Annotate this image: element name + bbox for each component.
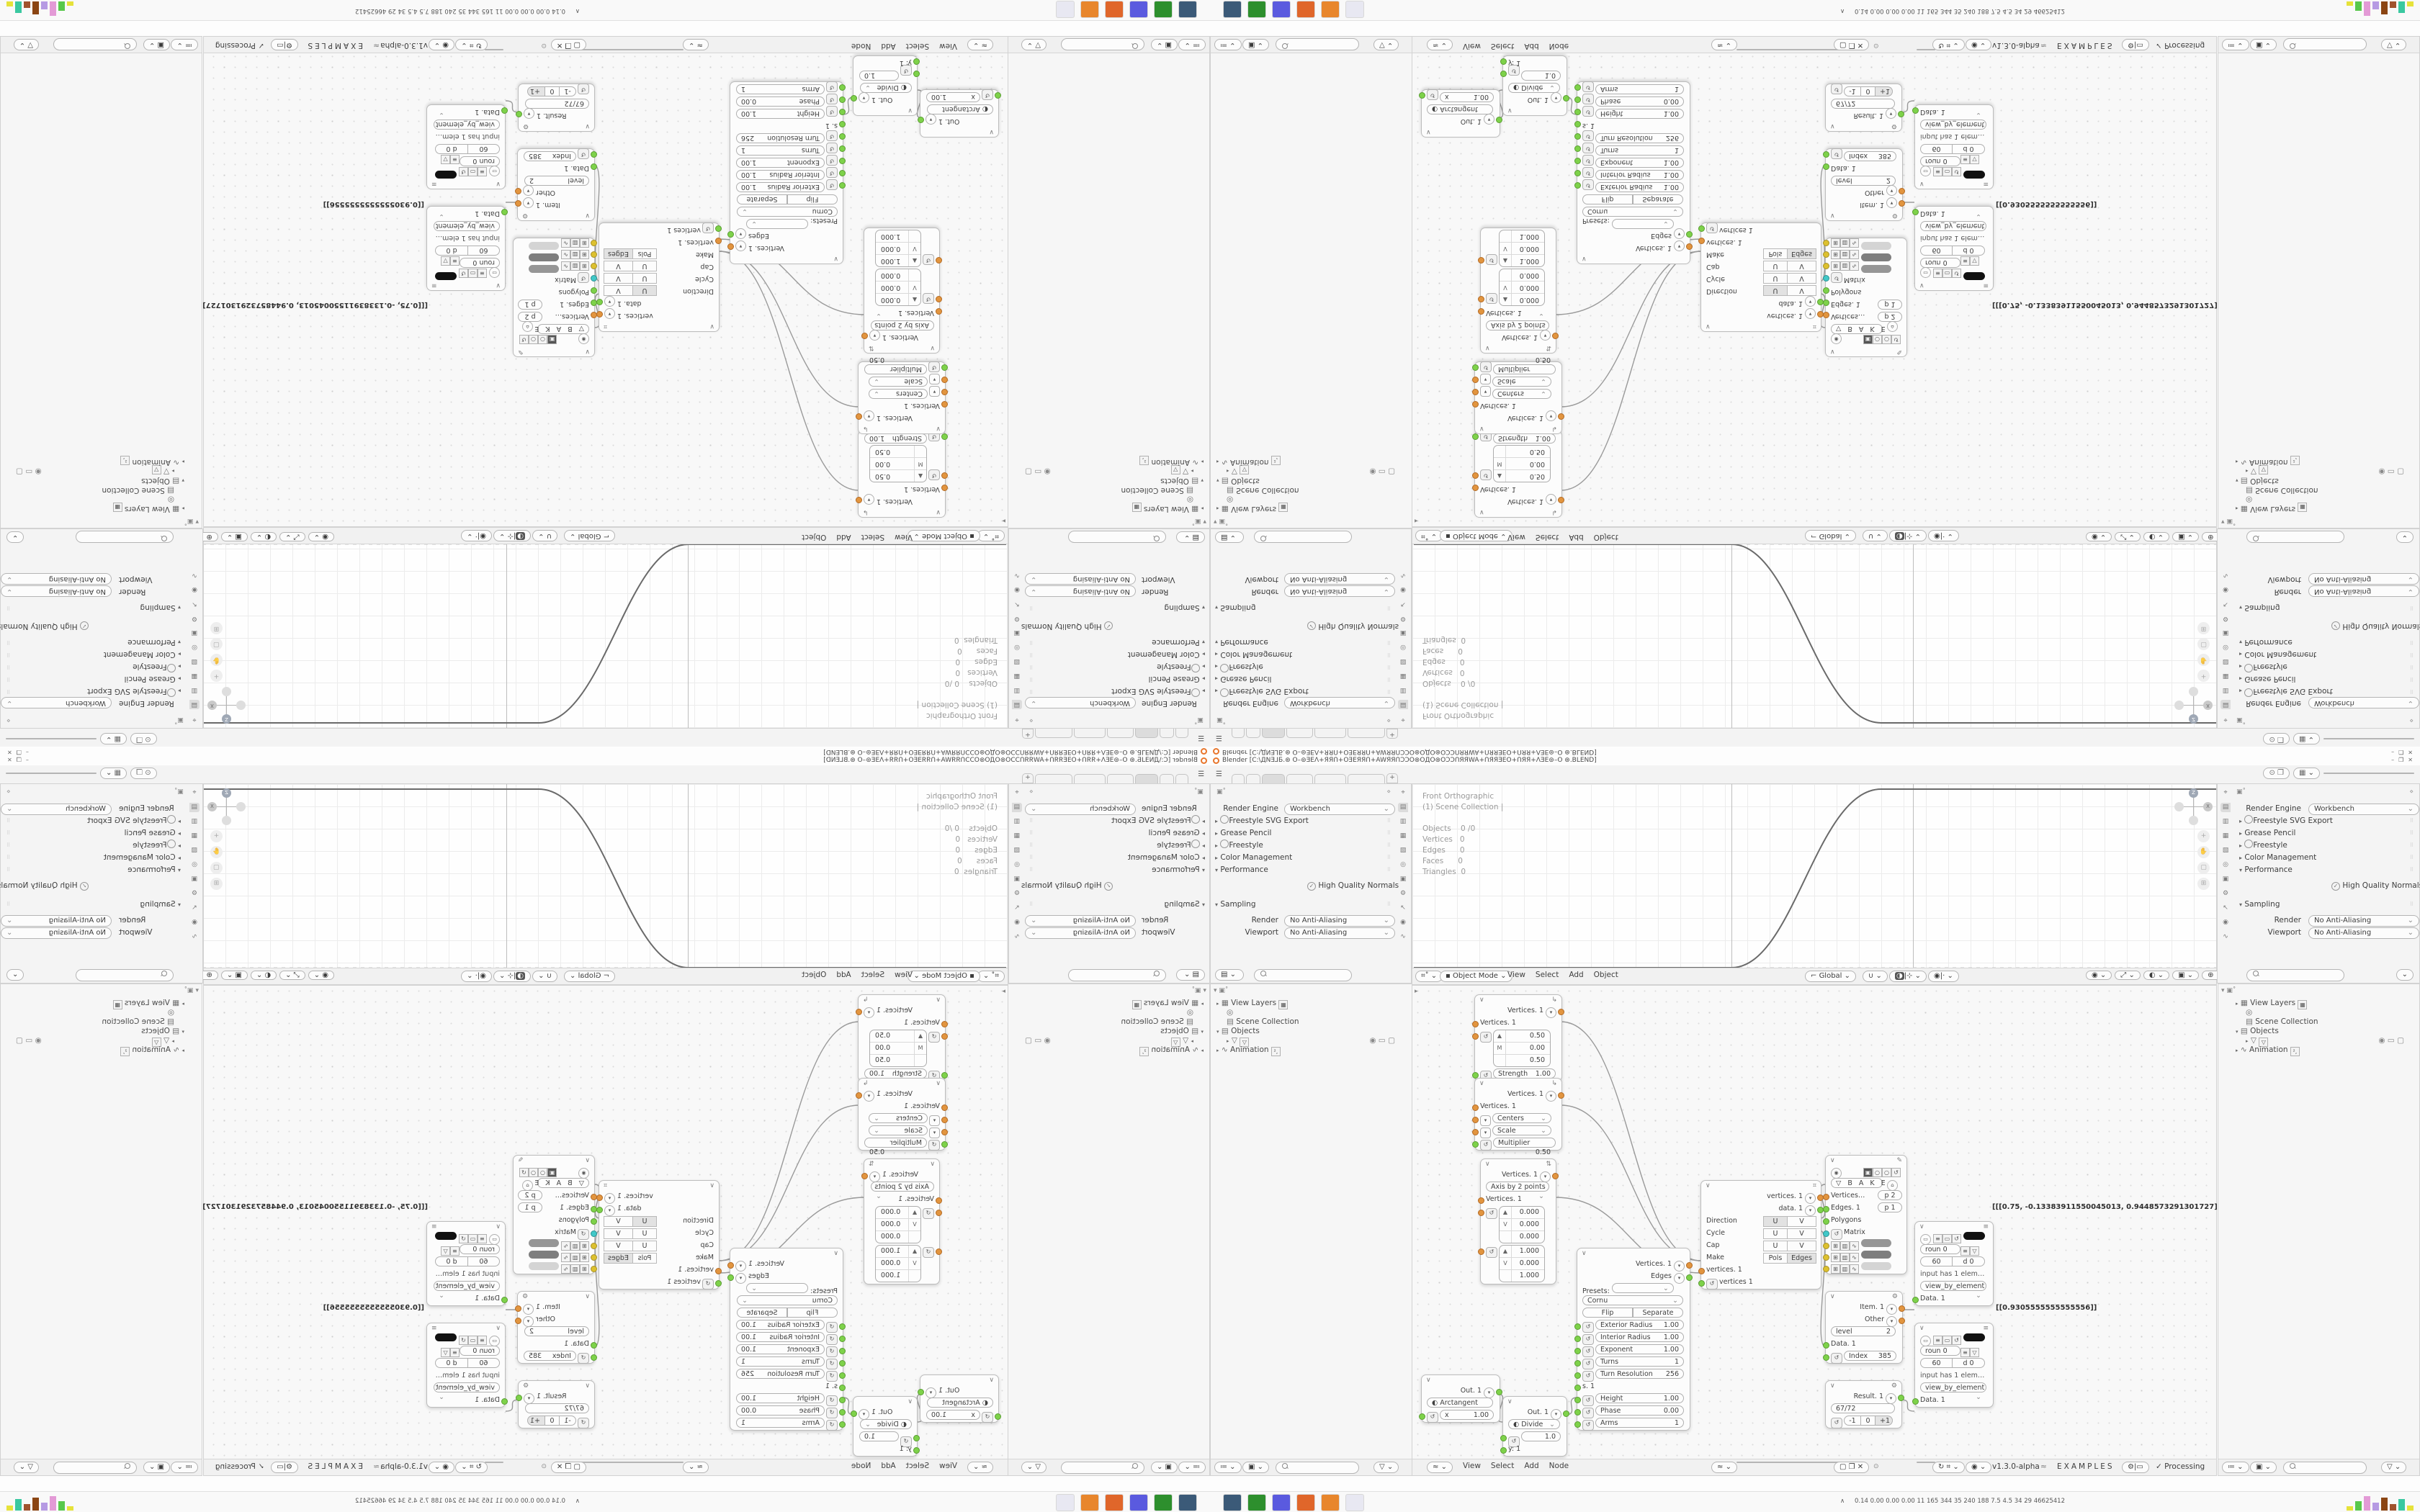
socket-green-right[interactable] [727,231,734,238]
checkbox-circle[interactable] [2244,664,2253,672]
mask-icon[interactable]: ⊞ [580,250,589,259]
section-label[interactable]: Grease Pencil [125,829,176,837]
number-field[interactable]: 67/72 [1831,99,1895,109]
socket-green-left[interactable] [1574,1323,1581,1330]
monitor-icon[interactable]: ▭ [489,1234,500,1245]
socket-orange-left[interactable] [941,1104,948,1111]
editor-type-dropdown[interactable]: ⌗˚ ⌄ [1415,971,1443,982]
tray-expand-icon[interactable]: ∧ [1840,7,1845,14]
socket-orange-right[interactable] [727,243,734,250]
enum-dropdown[interactable]: view_by_element⌄ [434,120,500,130]
outliner-chip-icon[interactable]: ², [2290,456,2300,465]
prop-dropdown[interactable]: No Anti-Aliasing⌄ [2308,585,2419,597]
menu-object[interactable]: Object [802,533,826,541]
editor-type-icon[interactable]: ▣˚ [1194,788,1204,796]
section-label[interactable]: Sampling [1220,603,1255,612]
list-icon[interactable]: ≡ [1960,256,1970,266]
socket-menu-icon[interactable]: ▾ [1674,228,1685,239]
animate-icon[interactable]: ↺ [826,1322,838,1333]
sverchok-node[interactable]: ∨✎◉ ▣○○↺▽ B A K E ⌂Vertices…p 2Edges. 1p… [513,1155,595,1274]
workspace-tab[interactable] [1348,774,1385,783]
socket-orange-left[interactable] [1478,1248,1484,1255]
shading-icon[interactable]: ⤢ ⌄ [2115,532,2141,541]
sverchok-node[interactable]: ∨Out. 1▾◐ Arctangent⌄↺x1.00 [920,89,999,138]
monitor-icon[interactable]: ▭ [1920,1234,1931,1245]
disclosure-icon[interactable]: ▾ [1202,867,1205,873]
disclosure-icon[interactable]: ▸ [2246,1038,2249,1044]
collapse-icon[interactable]: ∨ [1830,121,1835,131]
search-input[interactable] [1254,531,1352,543]
cycle-icon[interactable]: ↺ [578,84,589,94]
number-field[interactable]: Exterior Radius1.00 [736,182,825,192]
checkbox[interactable]: ✓ High Quality Normals [1021,620,1113,632]
disclosure-icon[interactable]: ▾ [1215,604,1218,611]
outliner-item-label[interactable]: Scene Collection [102,486,164,495]
disclosure-icon[interactable]: ▸ [178,688,181,694]
checkbox[interactable]: ✓ High Quality Normals [0,620,89,632]
socket-green-left[interactable] [995,1413,1001,1420]
socket-green-right[interactable] [727,1274,734,1281]
curve-icon[interactable]: ∿ [561,1253,570,1262]
socket-green-left[interactable] [1698,225,1705,232]
menu-node[interactable]: Node [1549,42,1569,50]
collapse-icon[interactable]: ∨ [989,1375,994,1385]
properties-tab-icon[interactable]: ▤ [189,803,200,812]
socket-orange-right[interactable] [1558,1009,1564,1015]
socket-orange-right[interactable] [856,497,862,503]
socket-orange-left[interactable] [1472,472,1479,479]
vector-field[interactable]: ▲0.50M0.000.50 [869,445,927,482]
properties-tab-icon[interactable]: ▥ [2220,685,2231,695]
socket-green-left[interactable] [591,163,597,170]
disclosure-icon[interactable]: ▾ [178,867,181,873]
tree-select-dropdown[interactable]: ≈ ⌄ [1711,39,1737,50]
color-swatch[interactable] [529,253,559,261]
animate-icon[interactable]: ↺ [982,89,993,100]
toggle-button[interactable]: Separate [1633,1308,1683,1318]
section-label[interactable]: Performance [127,638,176,647]
taskbar-app-icon[interactable] [1080,1494,1099,1511]
layers-icon[interactable]: ▥ [1840,250,1850,259]
disclosure-icon[interactable]: ▾ [1215,639,1218,645]
properties-tab-icon[interactable]: ◎ [2220,860,2231,870]
section-label[interactable]: Sampling [1164,603,1199,612]
viewport-3d[interactable]: Front Orthographic(1) Scene Collection |… [203,527,1008,729]
viewlayer-field[interactable] [6,738,97,739]
checkbox-circle[interactable] [2244,688,2253,697]
cycle-icon[interactable]: ↺ [1831,84,1842,94]
section-label[interactable]: Freestyle [1229,841,1263,850]
checkbox-circle[interactable] [167,688,176,697]
taskbar-app-icon[interactable] [1105,1,1124,18]
taskbar-app-icon[interactable] [1154,1494,1173,1511]
nav-tool-icon[interactable]: ▢ [2197,862,2210,874]
viewlayer-icon-dropdown[interactable]: ▦ ⌄ [100,768,127,779]
proportional-edit[interactable]: ◉|· ⌄ [1928,971,1959,982]
stepper-minus[interactable]: -1 [559,1416,576,1426]
enum-dropdown[interactable]: Axis by 2 points⌄ [871,1182,934,1192]
enum-dropdown[interactable]: view_by_element⌄ [434,1382,500,1392]
number-field[interactable]: 1.0 [1521,71,1561,81]
list-icon[interactable]: ≡ [1933,167,1942,176]
socket-yellow-left[interactable] [1823,263,1829,269]
collapse-icon[interactable]: ∨ [1582,253,1587,264]
socket-green-left[interactable] [839,1397,846,1403]
rounding-field[interactable]: roun 0 [460,156,500,166]
vector-field[interactable]: ▲1.000V0.0001.000 [875,1245,921,1282]
vector-field[interactable]: ▲0.000V0.0000.000 [1499,1206,1545,1243]
socket-orange-right[interactable] [856,413,862,420]
collapse-icon[interactable]: ∨ [585,210,590,220]
collapse-icon[interactable]: ∨ [907,105,913,115]
socket-green-right[interactable] [1496,117,1502,123]
checkbox[interactable]: ✓ High Quality Normals [1307,620,1399,632]
collapse-icon[interactable]: ∨ [585,1156,590,1166]
fake-user-buttons[interactable]: ▢ ❐ ✕ [1834,39,1869,50]
color-swatch[interactable] [529,265,559,273]
sverchok-node[interactable]: ∨≡▭ ≡▭↺ roun 0≡▽60d 0input has 1 elem…vi… [426,206,506,291]
socket-green-right[interactable] [918,1389,924,1395]
filter-icon[interactable]: ▽ [441,256,450,266]
taskbar-app-icon[interactable] [1321,1,1340,18]
add-workspace-button[interactable]: + [1386,773,1398,783]
taskbar-app-icon[interactable] [1129,1,1148,18]
node-editor[interactable]: ▸ ∨↳Vertices. 1▾Vertices. 1↺▲0.50M0.000.… [1412,985,2217,1476]
workspace-tab[interactable] [1074,729,1106,738]
rounding-field[interactable]: roun 0 [460,1346,500,1356]
socket-green-left[interactable] [1574,121,1581,127]
menu-icon[interactable]: ☰ [1216,734,1225,742]
socket-green-left[interactable] [1574,1385,1581,1391]
shading-icons[interactable]: ◉ ⌄⤢ ⌄◐ ⌄▣ ⌄⊕ ⌄ [2086,971,2231,981]
properties-tab-icon[interactable]: ⚙ [1398,613,1408,623]
shading-icon[interactable]: ◐ ⌄ [251,971,277,980]
socket-orange-right[interactable] [1899,188,1905,194]
animate-icon[interactable]: ↺ [702,222,714,233]
presets-dropdown[interactable]: ⌄ [1612,1283,1674,1293]
animate-icon[interactable]: ↺ [826,155,838,166]
socket-orange-left[interactable] [941,1033,948,1040]
mask-icon[interactable]: ⊞ [1831,1253,1840,1262]
socket-green-left[interactable] [839,133,846,140]
disclosure-icon[interactable]: ▸ [178,830,181,837]
tree-name-field[interactable] [1736,49,1842,50]
grid-cell[interactable]: Edges [1788,1253,1816,1264]
animate-icon[interactable]: ↺ [928,469,940,480]
filter-icon[interactable]: ▽ [1970,256,1979,266]
socket-orange-right[interactable] [861,333,868,339]
disclosure-icon[interactable]: ▾ [1202,604,1205,611]
viewlayer-icon-dropdown[interactable]: ▦ ⌄ [2293,768,2320,779]
outliner-item-label[interactable]: Objects [2250,1027,2279,1035]
grid-cell[interactable]: U [632,1241,657,1251]
properties-tab-icon[interactable]: ▥ [189,817,200,827]
sverchok-node[interactable]: ∨⚙Item. 1▾Other▾level2Data. 1↺Index385 [1825,1291,1903,1364]
enum-dropdown[interactable]: Axis by 2 points⌄ [1486,1182,1549,1192]
sverchok-node[interactable]: ∨↳Vertices. 1▾Vertices. 1▾Centers⌄▾Scale… [858,1078,946,1151]
socket-menu-icon[interactable]: ▾ [1886,197,1897,208]
add-workspace-button[interactable]: + [1022,729,1034,739]
outliner-item-label[interactable]: Animation [1151,458,1190,467]
grid-cell[interactable]: Pols [1763,248,1788,259]
list-icon[interactable]: ≡ [1933,269,1942,278]
properties-tab-icon[interactable]: ◉ [1012,918,1022,927]
tree-type-dropdown[interactable]: ≈ ⌄ [967,39,993,50]
menu-add[interactable]: Add [1524,1462,1538,1470]
socket-menu-icon[interactable]: ▾ [1480,1128,1491,1138]
layers-icon[interactable]: ▥ [570,1253,580,1262]
search-input[interactable] [1254,969,1352,981]
socket-green-left[interactable] [839,1372,846,1379]
number-field[interactable]: Phase0.00 [736,96,825,107]
prop-dropdown[interactable]: No Anti-Aliasing⌄ [1,927,112,939]
workspace-tab[interactable] [1286,729,1313,738]
search-input[interactable] [1276,1462,1359,1474]
pin-icon[interactable]: ⊙ [1873,42,1879,49]
socket-green-left[interactable] [1698,1280,1705,1287]
workspace-tab[interactable] [1135,729,1158,738]
pin-icon[interactable]: ⋄ [1386,716,1391,724]
color-swatch-black[interactable] [435,272,457,280]
socket-green-left[interactable] [501,1297,508,1303]
grid-cell[interactable]: V [604,1241,632,1251]
properties-tab-icon[interactable]: ◉ [2220,918,2231,927]
shading-icon[interactable]: ▣ ⌄ [221,971,248,980]
collapse-icon[interactable]: ∨ [1479,1079,1484,1089]
section-label[interactable]: Color Management [1220,853,1292,862]
workspace-tab[interactable] [1035,729,1072,738]
tree-select-dropdown[interactable]: ≈ ⌄ [683,1462,709,1473]
search-input[interactable] [1068,969,1166,981]
collapse-icon[interactable]: ∨ [585,1292,590,1302]
editor-type-dropdown[interactable]: ⌗˚ ⌄ [1415,530,1443,541]
section-label[interactable]: Performance [1152,865,1200,874]
eye-icon[interactable]: ◉ [578,333,589,344]
socket-orange-left[interactable] [936,308,942,315]
disclosure-icon[interactable]: ▸ [1215,688,1218,694]
viewport-gizmos[interactable]: Z X +✋▢⊞ [2174,788,2218,918]
socket-green-right[interactable] [516,1395,522,1401]
list-icon[interactable]: ≡ [1960,1246,1970,1256]
list-icon[interactable]: ≡ [478,1336,487,1345]
color-swatch-black[interactable] [435,1232,457,1240]
tree-type-dropdown[interactable]: ≈ ⌄ [967,1462,993,1473]
tray-expand-icon[interactable]: ∧ [575,7,580,14]
color-swatch[interactable] [529,1239,559,1247]
number-field[interactable]: Interior Radius1.00 [736,170,825,180]
animate-icon[interactable]: ↺ [1831,272,1842,283]
sverchok-node[interactable]: ∨≡▭ ≡▭↺ roun 0≡▽60d 0input has 1 elem…vi… [1914,1323,1994,1408]
disclosure-icon[interactable]: ▸ [1215,675,1218,682]
socket-menu-icon[interactable]: ▾ [524,1393,534,1404]
nav-tool-icon[interactable]: ▢ [210,862,223,874]
socket-menu-icon[interactable]: ▾ [604,308,615,319]
properties-tab-icon[interactable]: ▧ [1012,846,1022,855]
animate-icon[interactable]: ↺ [702,1279,714,1290]
grid-cell[interactable]: Edges [604,248,632,259]
socket-yellow-left[interactable] [591,1243,597,1249]
menu-add[interactable]: Add [836,971,851,979]
disclosure-icon[interactable]: ▸ [1202,842,1205,849]
color-swatch[interactable] [1861,1239,1891,1247]
animate-icon[interactable]: ↺ [826,1408,838,1418]
layers-icon[interactable]: ▥ [570,1264,580,1274]
sverchok-node[interactable]: ∨⇅Vertices. 1▾Axis by 2 points⌄Vertices.… [1480,228,1556,354]
properties-tab-icon[interactable]: ∿ [1012,932,1022,942]
tree-name-field[interactable] [1736,1462,1842,1463]
socket-green-right[interactable] [918,117,924,123]
number-field[interactable]: Turn Resolution256 [736,1369,825,1379]
mode-dropdown[interactable]: ▪ Object Mode ⌄ [1440,971,1512,982]
number-field[interactable]: x1.00 [926,92,980,102]
number-field[interactable]: Strength1.00 [1493,433,1556,444]
sverchok-node[interactable]: ∨⌗vertices. 1▾data. 1▾DirectionUVCycleUV… [599,1180,720,1290]
properties-tab-icon[interactable]: ▥ [1398,685,1408,695]
socket-orange-right[interactable] [856,1092,862,1099]
vector-field[interactable]: ▲1.000V0.0001.000 [1499,1245,1545,1282]
socket-green-right[interactable] [1686,1274,1693,1281]
toggle-button[interactable]: Flip [1582,1308,1633,1318]
disclosure-icon[interactable]: ▸ [1202,688,1205,694]
examples-menu[interactable]: EXAMPLES [305,1462,363,1471]
menu-node[interactable]: Node [1549,1462,1569,1470]
socket-green-right[interactable] [851,95,857,102]
socket-menu-icon[interactable]: ▾ [869,330,880,341]
section-label[interactable]: Freestyle [2253,662,2287,671]
snap-toggle[interactable]: ◑|⊹ ⌄ [493,971,531,982]
section-label[interactable]: Performance [1220,865,1268,874]
monitor-icon[interactable]: ▭ [1920,1336,1931,1346]
socket-menu-icon[interactable]: ▾ [864,410,874,421]
socket-orange-left[interactable] [936,1210,942,1216]
animate-icon[interactable]: ↺ [1427,1412,1438,1423]
socket-orange-left[interactable] [1472,1129,1479,1135]
display-toggle-icon[interactable]: ▣ [547,1168,557,1177]
socket-orange-left[interactable] [1478,296,1484,302]
display-mode-dropdown[interactable]: ≔ ⌄ [1178,39,1206,50]
checkbox[interactable]: ✓ High Quality Normals [2331,880,2420,892]
socket-green-left[interactable] [839,84,846,91]
animate-icon[interactable]: ↺ [1480,469,1492,480]
properties-tab-icon[interactable]: ⚙ [1012,889,1022,899]
stepper-minus[interactable]: -1 [559,86,576,96]
pin-icon[interactable]: ⊙ [1873,1463,1879,1470]
search-input[interactable] [2283,1462,2367,1474]
grid-cell[interactable]: V [1788,1228,1816,1239]
section-label[interactable]: Performance [2244,638,2293,647]
stepper-plus[interactable]: +1 [527,1416,544,1426]
outliner-chip-icon[interactable]: ², [2290,1047,2300,1056]
mask-icon[interactable]: ⊞ [580,1241,589,1251]
depth-field[interactable]: d 0 [1953,1358,1985,1368]
properties-tab-icon[interactable]: ⌖ [1398,714,1408,724]
collapse-icon[interactable]: ∨ [989,127,994,137]
search-input[interactable] [76,969,174,981]
prop-dropdown[interactable]: No Anti-Aliasing⌄ [2308,915,2419,927]
socket-menu-icon[interactable]: ▾ [523,1304,534,1315]
socket-yellow-left[interactable] [1823,1243,1829,1249]
sverchok-node[interactable]: ∨✎◉ ▣○○↺▽ B A K E ⌂Vertices…p 2Edges. 1p… [1825,238,1907,357]
socket-cyan-left[interactable] [1823,1230,1829,1237]
cycle-icon[interactable]: ↺ [1831,1418,1842,1428]
section-label[interactable]: Freestyle SVG Export [1111,816,1191,825]
socket-orange-right[interactable] [515,1318,521,1324]
socket-menu-icon[interactable]: ▾ [1480,1115,1491,1126]
menu-add[interactable]: Add [836,533,851,541]
display-mode-dropdown[interactable]: ≔ ⌄ [1178,1462,1206,1473]
socket-green-left[interactable] [591,1206,597,1212]
collapse-icon[interactable]: ∨ [709,321,714,331]
search-input[interactable] [2283,38,2367,50]
stepper-plus[interactable]: +1 [527,86,544,96]
section-label[interactable]: Color Management [104,650,176,659]
sverchok-node[interactable]: ∨↳Vertices. 1▾Vertices. 1↺▲0.50M0.000.50… [858,431,946,518]
socket-menu-icon[interactable]: ▾ [929,386,940,397]
socket-menu-icon[interactable]: ▾ [929,1128,940,1138]
filter-dropdown[interactable]: ▽ ⌄ [1373,39,1399,50]
toggle-button[interactable]: Flip [787,194,838,204]
prop-dropdown[interactable]: No Anti-Aliasing⌄ [1284,927,1395,939]
socket-menu-icon[interactable]: ▾ [1886,108,1896,119]
workspace-tab[interactable] [1262,774,1285,783]
socket-orange-left[interactable] [1478,308,1484,315]
properties-tab-icon[interactable]: ↖ [1012,599,1022,608]
mask-icon[interactable]: ⊞ [1831,261,1840,271]
tree-type-dropdown[interactable]: ≈ ⌄ [1427,39,1453,50]
socket-orange-left[interactable] [1823,1194,1829,1200]
number-field[interactable]: Index385 [1844,151,1896,161]
properties-tab-icon[interactable]: ⚙ [189,889,200,899]
socket-green-left[interactable] [1574,145,1581,152]
properties-tab-icon[interactable]: ↖ [1012,904,1022,913]
display-toggle-icon[interactable]: ○ [529,1168,538,1177]
socket-orange-right[interactable] [861,1173,868,1179]
socket-orange-right[interactable] [1558,497,1564,503]
number-field[interactable]: Multiplier0.50 [864,1138,927,1148]
socket-menu-icon[interactable]: ▾ [929,1115,940,1126]
rounding-field[interactable]: roun 0 [1920,156,1960,166]
nav-tool-icon[interactable]: + [2197,670,2210,682]
vector-field[interactable]: ▲0.50M0.000.50 [1493,445,1551,482]
pin-icon[interactable]: ⋄ [1029,788,1034,796]
nav-tool-icon[interactable]: ⊞ [2197,878,2210,890]
search-input[interactable] [1068,531,1166,543]
collapse-icon[interactable]: ∨ [1706,1181,1711,1191]
prop-dropdown[interactable]: Workbench⌄ [1284,804,1395,815]
socket-menu-icon[interactable]: ▾ [1540,330,1551,341]
stepper-value[interactable]: 0 [1861,1416,1875,1426]
tree-select-dropdown[interactable]: ≈ ⌄ [683,39,709,50]
properties-tab-icon[interactable]: ⌖ [189,714,200,724]
vector-field[interactable]: ▲0.000V0.0000.000 [875,1206,921,1243]
visibility-icons[interactable]: ◉ ▭ ▢ [1025,467,1051,476]
socket-orange-right[interactable] [856,1009,862,1015]
icon-toggle[interactable] [485,49,503,50]
section-label[interactable]: Performance [2244,865,2293,874]
prop-dropdown[interactable]: No Anti-Aliasing⌄ [1025,585,1136,597]
proportional-edit[interactable]: ◉|· ⌄ [1928,530,1959,541]
snap-dropdown[interactable]: ∪ ⌄ [532,971,557,982]
section-label[interactable]: Freestyle [2253,841,2287,850]
animate-icon[interactable]: ↺ [1582,94,1594,104]
pin-icon[interactable]: ⋄ [6,788,11,796]
menu-select[interactable]: Select [1536,971,1559,979]
socket-orange-left[interactable] [936,1197,942,1204]
section-label[interactable]: Freestyle [133,841,166,850]
disclosure-icon[interactable]: ▸ [1202,855,1205,861]
socket-yellow-left[interactable] [591,1266,597,1272]
animate-icon[interactable]: ↺ [826,94,838,104]
